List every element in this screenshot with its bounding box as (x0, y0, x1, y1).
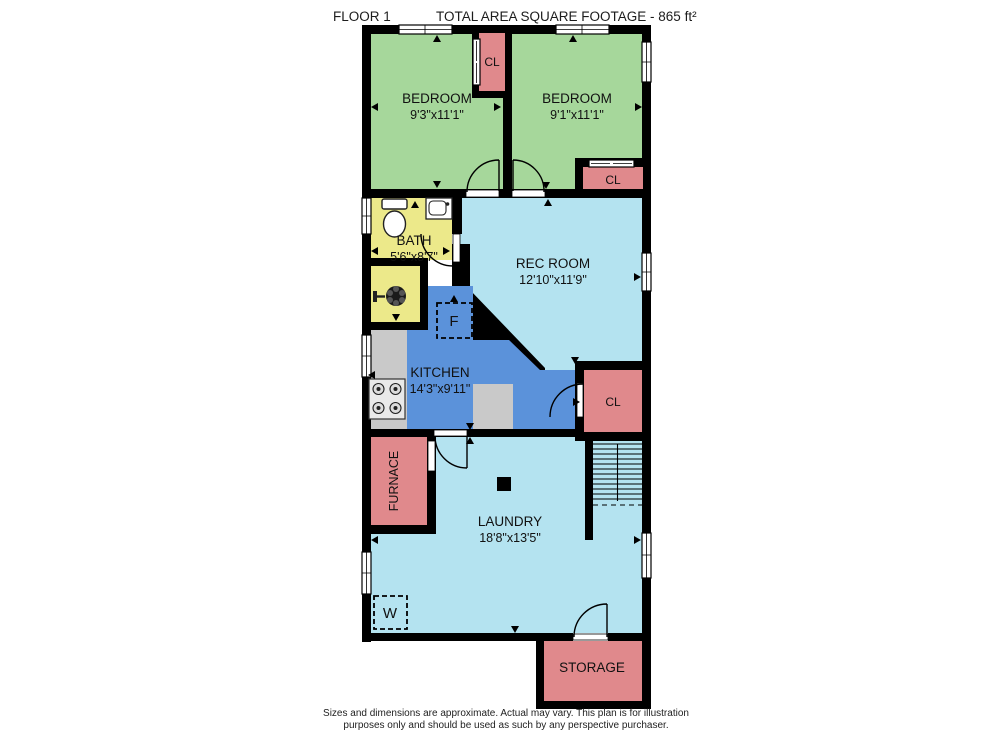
closet-kitchen-label: CL (605, 395, 621, 409)
support-column (497, 477, 511, 491)
wall-utility-right (420, 258, 428, 330)
toilet-icon (382, 199, 407, 237)
bedroom-left-dims: 9'3"x11'1" (410, 108, 464, 122)
closet-top-label: CL (484, 55, 500, 69)
sliding-door-icon (589, 160, 634, 167)
window-icon (362, 198, 371, 234)
laundry-dims: 18'8"x13'5" (479, 531, 541, 545)
sink-icon (426, 198, 452, 219)
window-icon (642, 253, 651, 291)
window-icon (362, 552, 371, 594)
wall-bath-right (452, 198, 462, 234)
storage-label: STORAGE (559, 660, 625, 675)
washer-label: W (383, 605, 398, 622)
laundry-label: LAUNDRY (478, 514, 542, 529)
door-threshold (577, 383, 583, 417)
window-icon (362, 335, 371, 377)
door-threshold (512, 190, 545, 197)
door-threshold (453, 234, 460, 262)
bedroom-left-label: BEDROOM (402, 91, 472, 106)
kitchen-island-counter (473, 384, 513, 429)
bath-label: BATH (396, 233, 431, 248)
floor-label: FLOOR 1 (333, 9, 391, 24)
floor-plan-canvas: FLOOR 1 TOTAL AREA SQUARE FOOTAGE - 865 … (0, 0, 1000, 737)
furnace-label: FURNACE (387, 451, 401, 511)
window-icon (642, 42, 651, 82)
wall-storage-right (642, 633, 651, 709)
wall-storage-left (536, 633, 544, 709)
footer-line-2: purposes only and should be used as such… (343, 720, 668, 731)
window-icon (556, 25, 609, 34)
wall-utility-bottom (370, 322, 428, 330)
sliding-door-icon (473, 39, 480, 85)
bath-dims: 5'6"x8'7" (390, 250, 438, 264)
bedroom-right-label: BEDROOM (542, 91, 612, 106)
footer-line-1: Sizes and dimensions are approximate. Ac… (323, 708, 689, 719)
refrigerator-label: F (449, 313, 458, 330)
bedroom-right-dims: 9'1"x11'1" (550, 108, 604, 122)
kitchen-dims: 14'3"x9'11" (410, 382, 471, 396)
door-threshold (434, 430, 467, 436)
wall-left (362, 25, 371, 642)
total-area-label: TOTAL AREA SQUARE FOOTAGE - 865 ft² (436, 9, 697, 24)
wall-stairs-left (585, 437, 593, 540)
stove-icon (369, 379, 405, 419)
rec-room-label: REC ROOM (516, 256, 590, 271)
window-icon (399, 25, 452, 34)
closet-bedroom-right-label: CL (605, 173, 621, 187)
floor-plan: FLOOR 1 TOTAL AREA SQUARE FOOTAGE - 865 … (0, 0, 1000, 737)
wall-furnace-bottom (370, 525, 436, 534)
door-threshold (428, 441, 435, 471)
window-icon (642, 533, 651, 578)
door-threshold (573, 634, 608, 640)
rec-room-dims: 12'10"x11'9" (519, 273, 587, 287)
door-threshold (466, 190, 499, 197)
kitchen-label: KITCHEN (410, 365, 469, 380)
